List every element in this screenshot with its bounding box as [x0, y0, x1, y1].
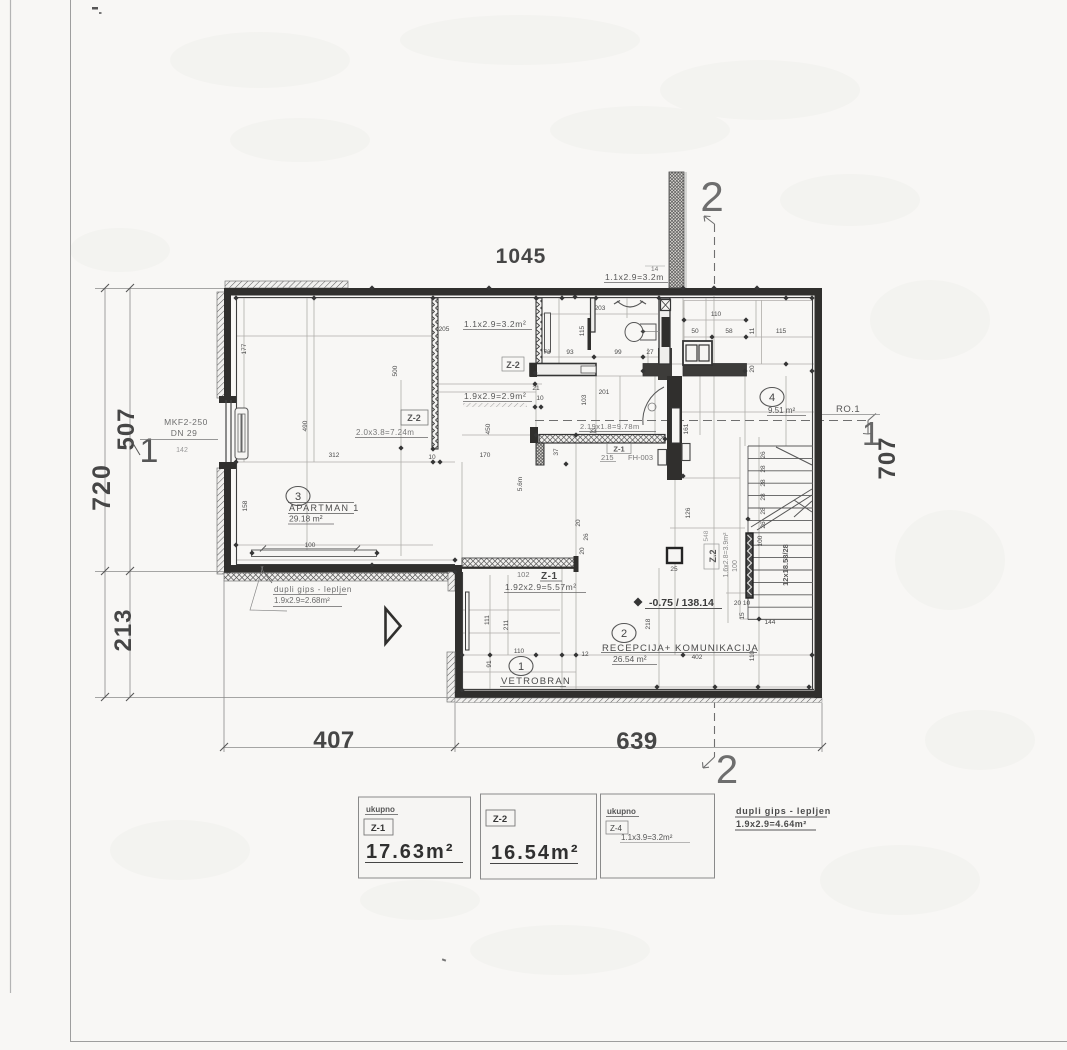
svg-text:93: 93: [566, 349, 574, 356]
svg-text:1.9x2.9=4.64m²: 1.9x2.9=4.64m²: [736, 819, 807, 829]
svg-text:102: 102: [517, 570, 530, 579]
svg-text:1045: 1045: [496, 245, 547, 268]
svg-text:312: 312: [329, 452, 340, 459]
svg-text:dupli gips - lepljen: dupli gips - lepljen: [736, 806, 831, 816]
svg-text:144: 144: [765, 619, 776, 626]
svg-text:Z-2: Z-2: [506, 360, 520, 370]
svg-text:215: 215: [601, 453, 614, 462]
svg-text:37: 37: [553, 448, 560, 456]
svg-text:50: 50: [691, 328, 699, 335]
svg-text:100: 100: [757, 535, 764, 546]
svg-text:10: 10: [428, 454, 436, 461]
svg-text:Z.2: Z.2: [708, 549, 718, 562]
svg-text:111: 111: [484, 615, 491, 625]
svg-text:26: 26: [583, 533, 590, 541]
svg-text:115: 115: [776, 328, 787, 335]
svg-text:20: 20: [749, 365, 756, 373]
svg-text:12x18.58/28: 12x18.58/28: [781, 544, 790, 586]
svg-text:VETROBRAN: VETROBRAN: [501, 676, 571, 687]
svg-text:29.18 m²: 29.18 m²: [289, 514, 323, 524]
svg-text:26.54 m²: 26.54 m²: [613, 654, 647, 664]
svg-text:1.1x3.9=3.2m²: 1.1x3.9=3.2m²: [621, 833, 673, 842]
svg-text:MKF2-250: MKF2-250: [164, 417, 208, 427]
svg-text:Z-1: Z-1: [613, 445, 624, 454]
svg-text:28: 28: [760, 465, 767, 473]
svg-text:211: 211: [503, 619, 510, 630]
svg-text:20 10: 20 10: [734, 600, 751, 607]
svg-text:73: 73: [543, 349, 551, 356]
svg-text:DN 29: DN 29: [171, 428, 198, 438]
svg-text:Z-2: Z-2: [493, 814, 507, 825]
svg-text:490: 490: [302, 420, 309, 431]
svg-text:25: 25: [670, 566, 678, 573]
svg-text:33: 33: [589, 428, 597, 435]
svg-text:205: 205: [439, 326, 450, 333]
svg-text:2: 2: [700, 173, 723, 220]
svg-text:58: 58: [725, 328, 733, 335]
svg-text:1: 1: [518, 661, 524, 673]
svg-text:450: 450: [485, 423, 492, 434]
svg-text:17.63m²: 17.63m²: [366, 841, 455, 863]
svg-text:110: 110: [711, 311, 722, 318]
svg-text:11: 11: [749, 327, 756, 334]
svg-text:203: 203: [595, 305, 606, 312]
svg-text:2: 2: [621, 628, 627, 640]
svg-text:170: 170: [480, 452, 491, 459]
svg-text:407: 407: [313, 727, 355, 754]
svg-text:2: 2: [716, 748, 738, 792]
svg-text:10: 10: [536, 395, 544, 402]
svg-text:2.0x3.8=7.24m: 2.0x3.8=7.24m: [356, 428, 414, 437]
svg-text:402: 402: [692, 654, 703, 661]
svg-text:100: 100: [732, 560, 739, 572]
svg-text:1.92x2.9=5.57m²: 1.92x2.9=5.57m²: [505, 582, 577, 592]
svg-text:dupli gips - lepljen: dupli gips - lepljen: [274, 585, 352, 594]
svg-text:3: 3: [295, 491, 301, 503]
svg-text:1.9x2.9=2.68m²: 1.9x2.9=2.68m²: [274, 596, 330, 605]
svg-text:1.6x2.8=3.9m²: 1.6x2.8=3.9m²: [723, 532, 730, 578]
svg-text:201: 201: [599, 389, 610, 396]
svg-text:26: 26: [760, 521, 767, 529]
svg-text:1: 1: [862, 415, 880, 452]
svg-text:177: 177: [241, 343, 248, 354]
svg-text:28: 28: [760, 479, 767, 487]
svg-text:142: 142: [176, 447, 188, 454]
svg-text:Z-1: Z-1: [371, 823, 386, 834]
svg-text:RO.1: RO.1: [836, 404, 860, 415]
svg-text:FH-003: FH-003: [628, 453, 653, 462]
svg-text:720: 720: [88, 463, 116, 511]
svg-text:20: 20: [575, 519, 582, 527]
svg-text:213: 213: [110, 608, 137, 651]
svg-text:218: 218: [645, 618, 652, 629]
svg-text:Z-4: Z-4: [610, 824, 623, 833]
svg-text:91: 91: [486, 660, 493, 668]
svg-text:Z-2: Z-2: [407, 413, 421, 423]
svg-text:161: 161: [683, 423, 690, 434]
svg-text:26: 26: [760, 451, 767, 459]
svg-text:ukupno: ukupno: [607, 807, 636, 816]
svg-text:1.1x2.9=3.2m²: 1.1x2.9=3.2m²: [464, 319, 526, 329]
svg-text:28: 28: [760, 507, 767, 515]
svg-text:21: 21: [532, 385, 540, 392]
svg-text:20: 20: [579, 547, 586, 555]
svg-text:99: 99: [614, 349, 622, 356]
svg-text:115: 115: [579, 325, 586, 336]
svg-text:507: 507: [113, 407, 140, 450]
svg-text:126: 126: [685, 507, 692, 518]
svg-text:28: 28: [760, 493, 767, 501]
svg-text:103: 103: [581, 394, 588, 405]
svg-text:9.51 m²: 9.51 m²: [768, 406, 795, 415]
svg-text:4: 4: [769, 392, 775, 404]
svg-text:1: 1: [140, 432, 159, 470]
svg-text:158: 158: [242, 500, 249, 511]
svg-text:Z-1: Z-1: [541, 571, 558, 582]
svg-text:APARTMAN 1: APARTMAN 1: [289, 503, 360, 513]
svg-text:-0.75 / 138.14: -0.75 / 138.14: [649, 597, 714, 609]
svg-text:110: 110: [514, 648, 525, 655]
svg-text:100: 100: [305, 542, 316, 549]
svg-text:ukupno: ukupno: [366, 805, 395, 814]
svg-text:1.1x2.9=3.2m: 1.1x2.9=3.2m: [605, 272, 664, 282]
svg-text:12: 12: [581, 651, 589, 658]
svg-text:548: 548: [703, 530, 710, 541]
svg-text:15: 15: [739, 612, 746, 620]
svg-text:500: 500: [392, 365, 399, 376]
svg-text:639: 639: [616, 728, 658, 755]
svg-text:110: 110: [749, 650, 756, 661]
svg-text:27: 27: [646, 349, 654, 356]
svg-text:16.54m²: 16.54m²: [491, 842, 580, 864]
svg-text:5.6m: 5.6m: [517, 477, 524, 491]
svg-text:1.9x2.9=2.9m²: 1.9x2.9=2.9m²: [464, 391, 526, 401]
